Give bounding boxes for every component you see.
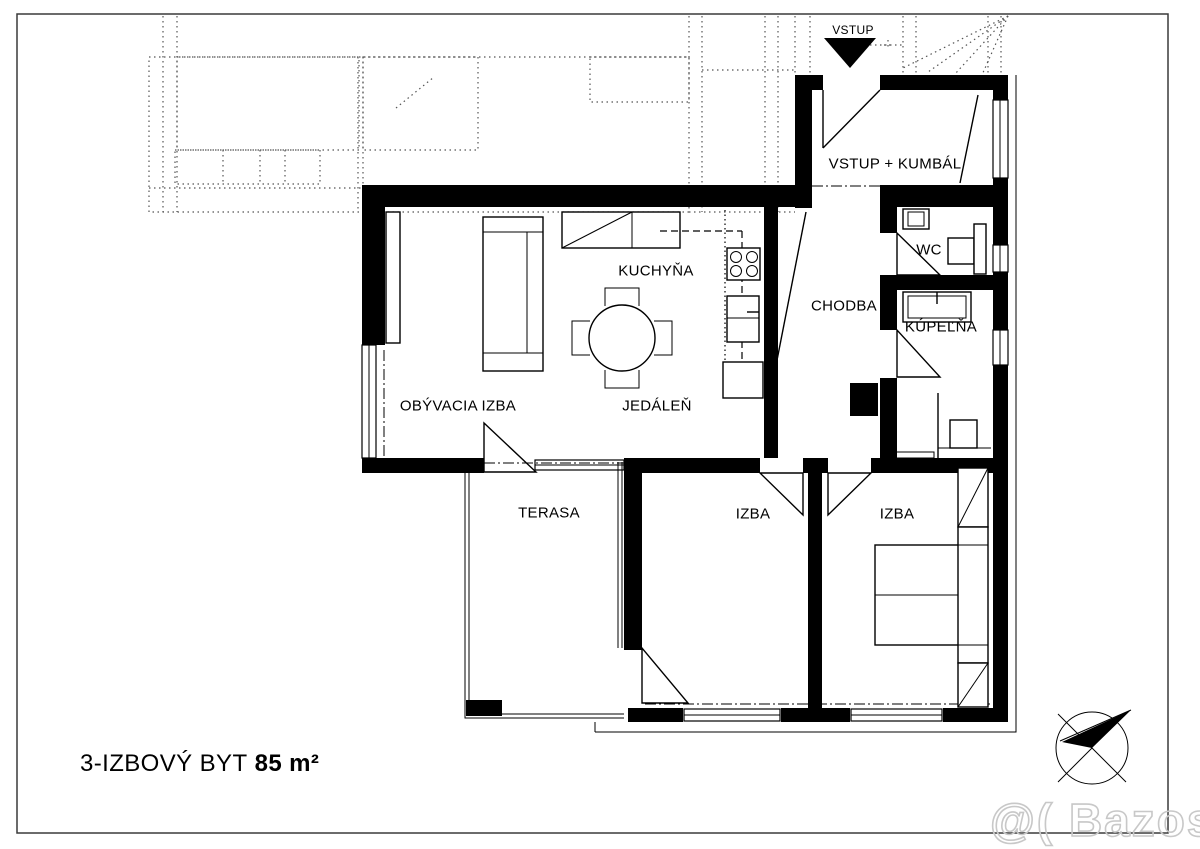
plan-title: 3-IZBOVÝ BYT 85 m² <box>80 750 319 778</box>
toilet <box>903 209 929 229</box>
room-label-chodba: CHODBA <box>811 298 877 315</box>
radiator <box>386 212 400 343</box>
room-label-terasa: TERASA <box>518 505 580 522</box>
neighbor-apartment-outlines <box>149 16 810 212</box>
bathroom-fittings <box>892 393 991 458</box>
dining-table <box>572 288 672 388</box>
bathroom-washbasin <box>903 292 971 322</box>
izba1-balcony-door-swing <box>642 648 688 703</box>
wc-washbasin <box>948 224 986 274</box>
bathroom-door-swing <box>897 330 940 377</box>
entrance-arrow-icon <box>824 38 876 68</box>
plan-title-text: 3-IZBOVÝ BYT <box>80 750 248 777</box>
compass-icon <box>1056 710 1131 784</box>
terrace-door-swing <box>484 423 536 472</box>
wardrobe <box>958 468 988 707</box>
room-label-izba2: IZBA <box>880 506 915 523</box>
room-label-kuchyna: KUCHYŇA <box>618 263 693 280</box>
watermark: @( Bazos.sk <box>990 793 1200 847</box>
kumbal-door-leaf <box>960 95 978 183</box>
kitchen-base-cabinet <box>723 362 763 398</box>
stove <box>727 248 760 280</box>
izba2-door-swing <box>828 473 871 515</box>
room-label-obyvacia-izba: OBÝVACIA IZBA <box>400 398 516 415</box>
room-label-izba1: IZBA <box>736 506 771 523</box>
sofa <box>483 217 543 371</box>
floorplan-drawing <box>0 0 1200 849</box>
entrance-arrow-label: VSTUP <box>832 23 874 37</box>
room-label-jedalen: JEDÁLEŇ <box>622 398 692 415</box>
plan-title-area: 85 m² <box>255 750 320 777</box>
floorplan-page: VSTUP VSTUP + KUMBÁL WC KÚPEĽŇA CHODBA K… <box>0 0 1200 849</box>
room-label-wc: WC <box>916 242 942 259</box>
kitchen-sink <box>727 296 759 342</box>
room-label-vstup-kumbal: VSTUP + KUMBÁL <box>829 156 962 173</box>
room-label-kupelna: KÚPEĽŇA <box>905 319 977 336</box>
